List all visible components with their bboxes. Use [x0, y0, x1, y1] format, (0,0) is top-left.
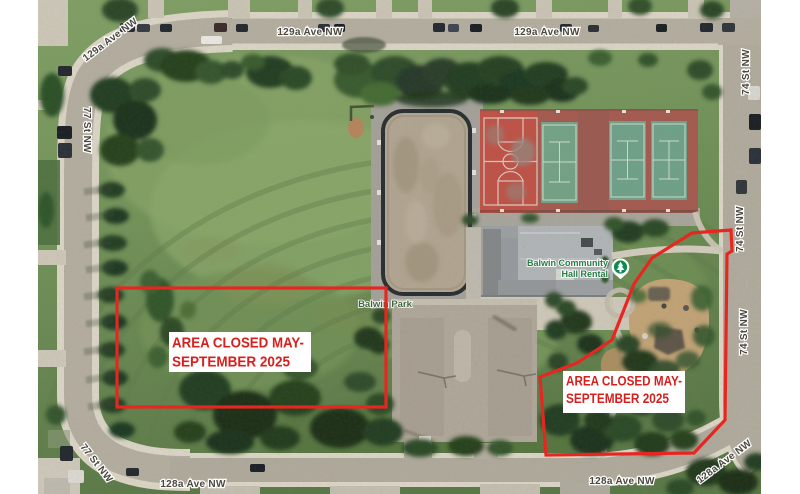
svg-text:129a Ave NW: 129a Ave NW: [277, 27, 343, 38]
svg-text:SEPTEMBER 2025: SEPTEMBER 2025: [566, 391, 669, 406]
svg-text:74 St NW: 74 St NW: [741, 49, 752, 95]
svg-text:74 St NW: 74 St NW: [739, 309, 750, 355]
svg-text:128a Ave NW: 128a Ave NW: [589, 476, 655, 487]
svg-text:77 St NW: 77 St NW: [81, 107, 92, 153]
svg-text:128a Ave NW: 128a Ave NW: [160, 479, 226, 490]
svg-text:Balwin Community: Balwin Community: [527, 258, 608, 268]
svg-text:SEPTEMBER 2025: SEPTEMBER 2025: [172, 354, 290, 371]
svg-text:Hall Rental: Hall Rental: [561, 269, 608, 279]
svg-text:AREA CLOSED MAY-: AREA CLOSED MAY-: [172, 335, 304, 352]
svg-text:74 St NW: 74 St NW: [735, 206, 746, 252]
svg-text:AREA CLOSED MAY-: AREA CLOSED MAY-: [566, 374, 682, 389]
svg-text:129a Ave NW: 129a Ave NW: [514, 27, 580, 38]
